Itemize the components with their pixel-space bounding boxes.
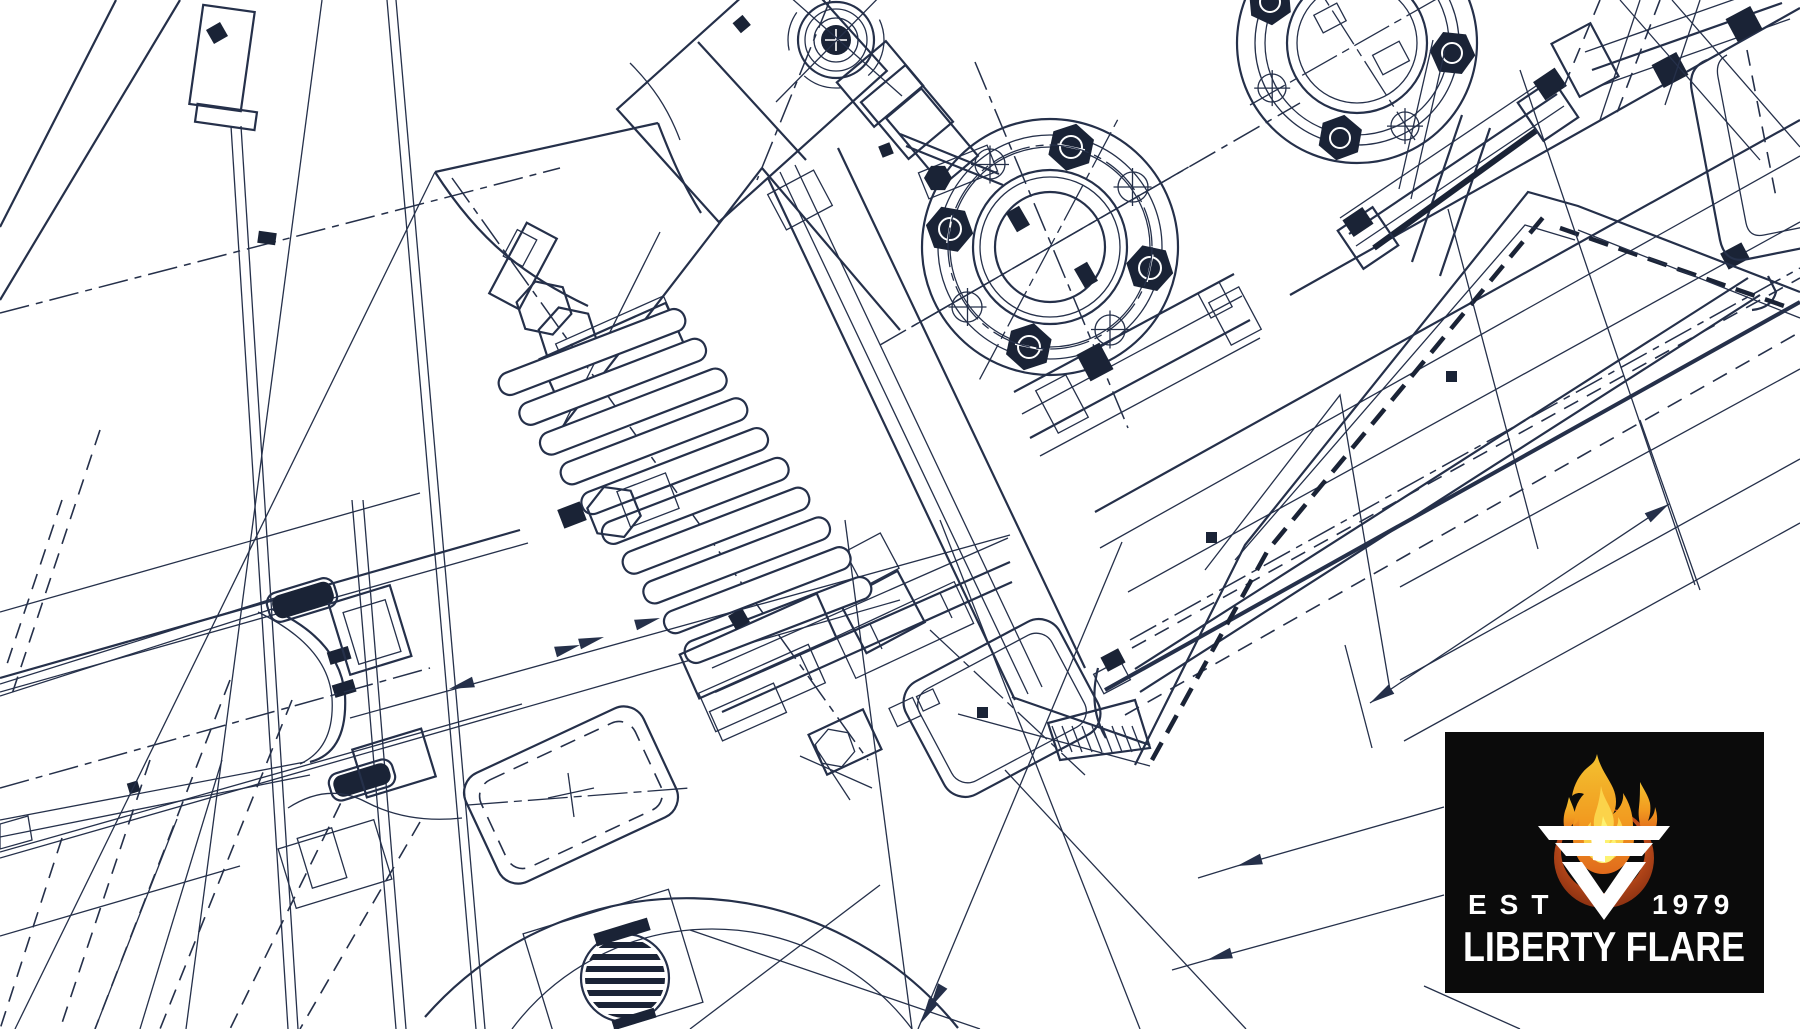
svg-text:LIBERTY FLARE: LIBERTY FLARE: [1463, 923, 1745, 970]
svg-text:1979: 1979: [1652, 889, 1734, 920]
svg-text:EST: EST: [1468, 889, 1561, 920]
